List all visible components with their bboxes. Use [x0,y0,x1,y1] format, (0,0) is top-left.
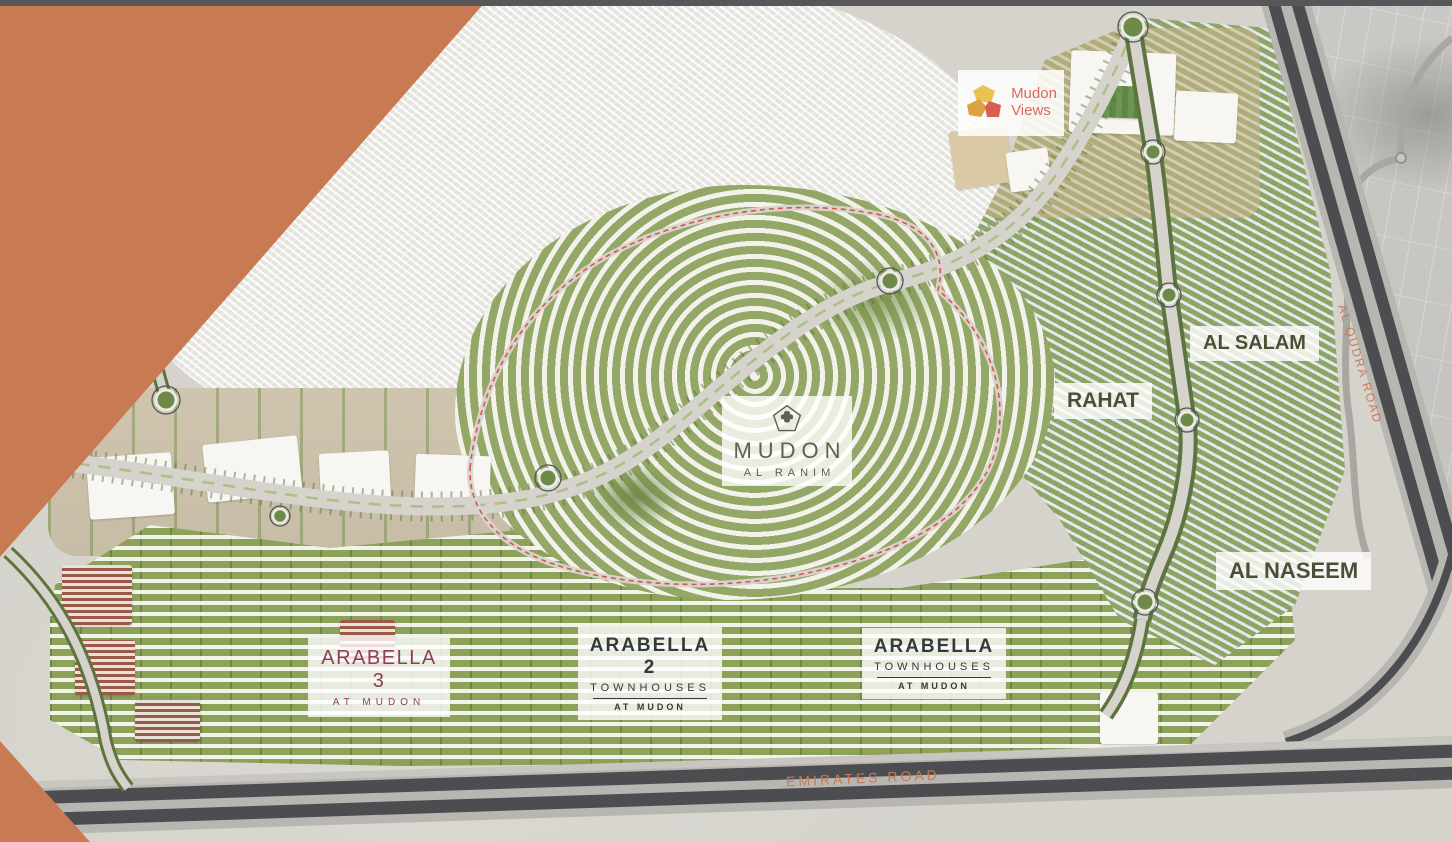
arabella-2-name: ARABELLA 2 [584,635,716,679]
al-qudra-road [1272,0,1452,591]
rahat-label: RAHAT [1054,383,1152,419]
arabella-2-type: TOWNHOUSES [590,682,710,694]
mudon-al-ranim-label: MUDON AL RANIM [722,396,852,486]
masterplan-map: Mudon Views MUDON AL RANIM RAHAT AL SALA… [0,0,1452,842]
arabella-divider [877,677,991,678]
arabella-3-label: ARABELLA 3 AT MUDON [308,638,450,717]
arabella-2-divider [593,698,707,699]
mudon-al-ranim-logo-icon [771,403,803,435]
mudon-views-line2: Views [1011,103,1057,120]
mudon-al-ranim-name: MUDON [727,438,846,464]
al-salam-label: AL SALAM [1190,326,1319,361]
arabella-type: TOWNHOUSES [874,661,994,673]
emirates-road [0,740,1452,821]
arabella-subtitle: AT MUDON [898,681,970,691]
mudon-views-logo-icon [965,83,1005,123]
arabella-name: ARABELLA [874,636,995,658]
arabella-3-name: ARABELLA 3 [314,647,444,693]
arabella-2-label: ARABELLA 2 TOWNHOUSES AT MUDON [578,627,722,720]
arabella-label: ARABELLA TOWNHOUSES AT MUDON [862,628,1006,699]
al-naseem-label: AL NASEEM [1216,552,1371,590]
arabella-2-subtitle: AT MUDON [614,702,686,712]
mudon-al-ranim-subname: AL RANIM [739,467,836,479]
top-border-bar [0,0,1452,6]
mudon-views-line1: Mudon [1011,86,1057,103]
mudon-views-label: Mudon Views [958,70,1064,136]
arabella-3-subtitle: AT MUDON [333,697,425,708]
